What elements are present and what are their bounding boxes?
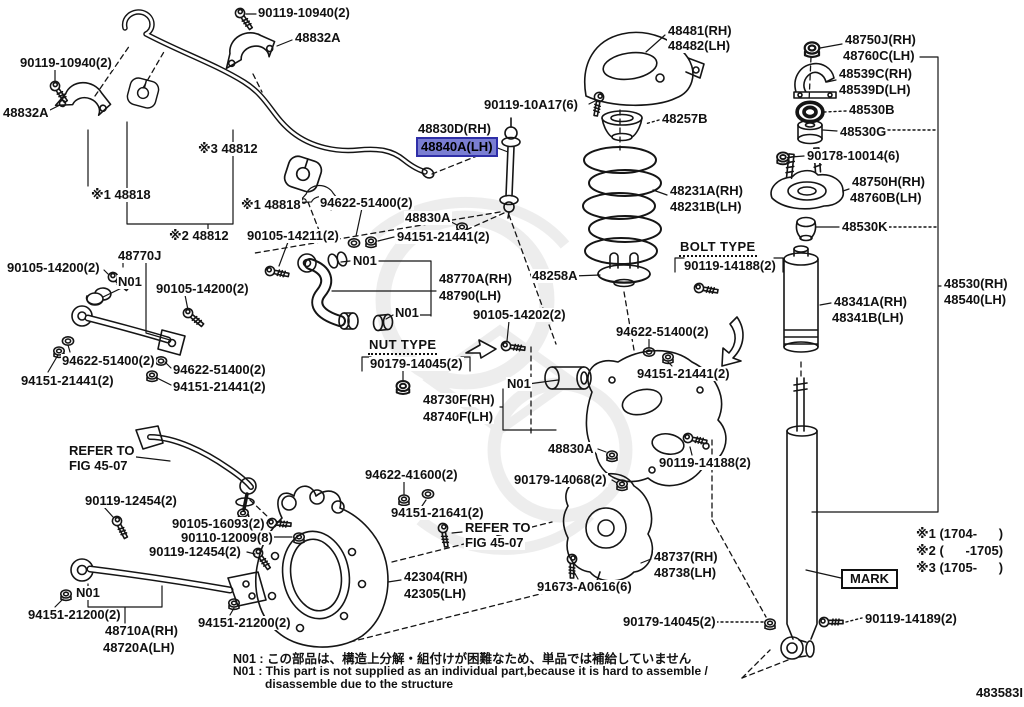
part-number-label[interactable]: 48341B(LH) xyxy=(831,311,905,325)
part-number-label[interactable]: ※2 48812 xyxy=(168,229,230,243)
part-number-label[interactable]: 94622-41600(2) xyxy=(364,468,459,482)
coil-spring-drawing xyxy=(583,147,661,264)
highlighted-part-label[interactable]: 48840A(LH) xyxy=(418,139,496,155)
part-number-label[interactable]: 48231B(LH) xyxy=(669,200,743,214)
fastener-type-label: BOLT TYPE xyxy=(679,240,757,257)
part-number-label[interactable]: 48832A xyxy=(294,31,342,45)
part-number-label[interactable]: 94151-21441(2) xyxy=(20,374,115,388)
legend-line-2: ※2 ( -1705) xyxy=(915,544,1004,558)
part-number-label[interactable]: 48830D(RH) xyxy=(417,122,492,136)
part-number-label[interactable]: 90105-16093(2) xyxy=(171,517,266,531)
spring-insulator-drawing xyxy=(602,111,642,141)
part-number-label[interactable]: 48231A(RH) xyxy=(669,184,744,198)
note-english-line2: disassemble due to the structure xyxy=(265,677,453,691)
bump-stop-drawing xyxy=(796,218,815,241)
part-number-label[interactable]: 48760C(LH) xyxy=(842,49,916,63)
front-lateral-arm-drawing xyxy=(72,288,185,355)
diagram-number: 483583I xyxy=(976,685,1023,700)
part-number-label[interactable]: 48530K xyxy=(841,220,889,234)
part-number-label[interactable]: 48710A(RH) xyxy=(104,624,179,638)
note-english-line1: N01 : This part is not supplied as an in… xyxy=(233,664,708,678)
legend-line-3: ※3 (1705- ) xyxy=(915,561,1004,575)
refer-to-fig-label: FIG 45-07 xyxy=(68,459,129,473)
part-number-label[interactable]: 48539C(RH) xyxy=(838,67,913,81)
part-number-label[interactable]: 42304(RH) xyxy=(403,570,469,584)
n01-reference-label: N01 xyxy=(506,377,532,391)
part-number-label[interactable]: 48540(LH) xyxy=(943,293,1007,307)
n01-reference-label: N01 xyxy=(75,586,101,600)
part-number-label[interactable]: 48341A(RH) xyxy=(833,295,908,309)
part-number-label[interactable]: 94622-51400(2) xyxy=(319,196,414,210)
shock-absorber-drawing xyxy=(781,378,817,659)
part-number-label[interactable]: 94622-51400(2) xyxy=(172,363,267,377)
part-number-label[interactable]: 94151-21441(2) xyxy=(636,367,731,381)
part-number-label[interactable]: 48760B(LH) xyxy=(849,191,923,205)
part-number-label[interactable]: 48830A xyxy=(547,442,595,456)
part-number-label[interactable]: 90179-14045(2) xyxy=(622,615,717,629)
part-number-label[interactable]: 90119-10940(2) xyxy=(19,56,113,70)
fastener-type-label: NUT TYPE xyxy=(368,338,437,355)
part-number-label[interactable]: 48770J xyxy=(117,249,162,263)
part-number-label[interactable]: 90105-14200(2) xyxy=(155,282,250,296)
part-number-label[interactable]: 48481(RH) xyxy=(667,24,733,38)
part-number-label[interactable]: 90178-10014(6) xyxy=(806,149,901,163)
dust-cover-drawing xyxy=(784,246,818,352)
refer-to-fig-label: REFER TO xyxy=(68,444,136,458)
part-number-label[interactable]: 42305(LH) xyxy=(403,587,467,601)
part-number-label[interactable]: 91673-A0616(6) xyxy=(536,580,633,594)
part-number-label[interactable]: 94622-51400(2) xyxy=(61,354,156,368)
parts-diagram-canvas: N01 : この部品は、構造上分解・組付けが困難なため、単品では補給していません… xyxy=(0,0,1024,707)
part-number-label[interactable]: 94622-51400(2) xyxy=(615,325,710,339)
legend-line-1: ※1 (1704- ) xyxy=(915,527,1004,541)
part-number-label[interactable]: 48530B xyxy=(848,103,896,117)
part-number-label[interactable]: 90119-14189(2) xyxy=(864,612,958,626)
fastener-drawings xyxy=(49,7,843,630)
part-number-label[interactable]: 48730F(RH) xyxy=(422,393,496,407)
part-number-label[interactable]: 48832A xyxy=(2,106,50,120)
stabilizer-link-drawing xyxy=(500,118,520,218)
part-number-label[interactable]: 48539D(LH) xyxy=(838,83,912,97)
part-number-label[interactable]: 48257B xyxy=(661,112,709,126)
part-number-label[interactable]: 90179-14045(2) xyxy=(369,357,464,371)
refer-to-fig-label: REFER TO xyxy=(464,521,532,535)
part-number-label[interactable]: 90119-14188(2) xyxy=(658,456,752,470)
part-number-label[interactable]: 48750H(RH) xyxy=(851,175,926,189)
part-number-label[interactable]: 48738(LH) xyxy=(653,566,717,580)
part-number-label[interactable]: ※1 48818 xyxy=(90,188,152,202)
part-number-label[interactable]: 48482(LH) xyxy=(667,39,731,53)
part-number-label[interactable]: 94151-21441(2) xyxy=(396,230,491,244)
part-number-label[interactable]: 48790(LH) xyxy=(438,289,502,303)
n01-reference-label: N01 xyxy=(117,275,143,289)
spring-lower-seat-drawing xyxy=(598,253,650,287)
part-number-label[interactable]: 48830A xyxy=(404,211,452,225)
part-number-label[interactable]: 94151-21641(2) xyxy=(390,506,485,520)
part-number-label[interactable]: 90105-14200(2) xyxy=(6,261,101,275)
part-number-label[interactable]: 90119-14188(2) xyxy=(683,259,777,273)
part-number-label[interactable]: 90105-14202(2) xyxy=(472,308,567,322)
part-number-label[interactable]: 48530(RH) xyxy=(943,277,1009,291)
part-number-label[interactable]: 48530G xyxy=(839,125,887,139)
part-number-label[interactable]: ※3 48812 xyxy=(197,142,259,156)
part-number-label[interactable]: 94151-21441(2) xyxy=(172,380,267,394)
part-number-label[interactable]: 90119-12454(2) xyxy=(84,494,178,508)
part-number-label[interactable]: 48737(RH) xyxy=(653,550,719,564)
support-hardware-drawings xyxy=(777,42,836,164)
n01-reference-label: N01 xyxy=(352,254,378,268)
stabilizer-bar-drawing xyxy=(125,12,436,180)
part-number-label[interactable]: 90119-12454(2) xyxy=(148,545,242,559)
part-number-label[interactable]: ※1 48818 xyxy=(240,198,302,212)
part-number-label[interactable]: 90179-14068(2) xyxy=(513,473,608,487)
part-number-label[interactable]: 48750J(RH) xyxy=(844,33,917,47)
part-number-label[interactable]: 90105-14211(2) xyxy=(246,229,340,243)
part-number-label[interactable]: 48258A xyxy=(531,269,579,283)
part-number-label[interactable]: 48770A(RH) xyxy=(438,272,513,286)
part-number-label[interactable]: 90110-12009(8) xyxy=(180,531,274,545)
n01-reference-label: N01 xyxy=(394,306,420,320)
part-number-label[interactable]: 94151-21200(2) xyxy=(197,616,292,630)
refer-to-fig-label: FIG 45-07 xyxy=(464,536,525,550)
mark-box-label: MARK xyxy=(841,569,898,589)
part-number-label[interactable]: 90119-10A17(6) xyxy=(483,98,579,112)
part-number-label[interactable]: 94151-21200(2) xyxy=(27,608,122,622)
part-number-label[interactable]: 48720A(LH) xyxy=(102,641,176,655)
part-number-label[interactable]: 48740F(LH) xyxy=(422,410,494,424)
part-number-label[interactable]: 90119-10940(2) xyxy=(257,6,351,20)
